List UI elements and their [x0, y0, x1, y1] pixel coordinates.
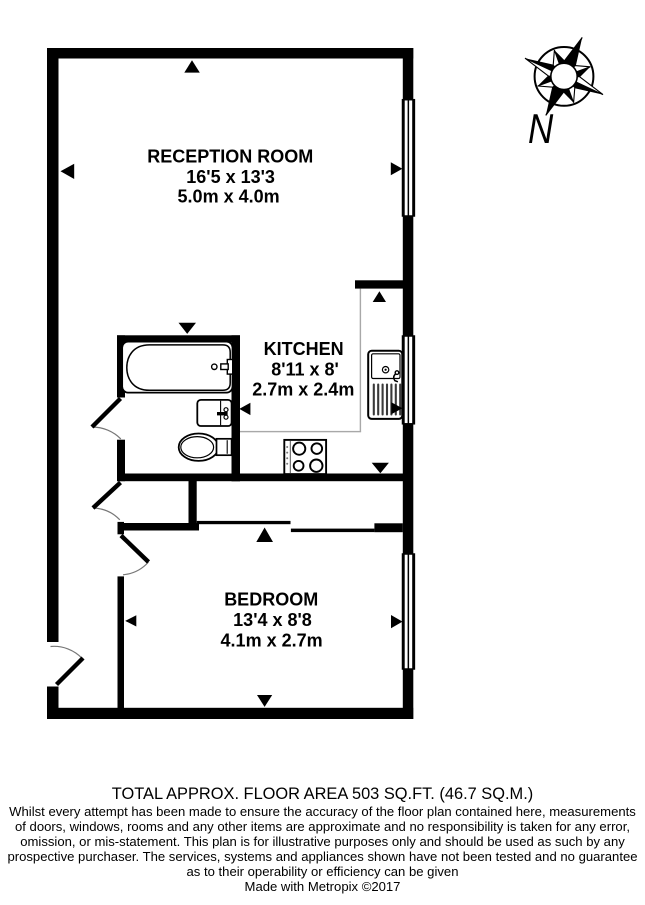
- svg-text:Whilst every attempt has been: Whilst every attempt has been made to en…: [9, 804, 636, 819]
- svg-text:KITCHEN: KITCHEN: [264, 339, 344, 359]
- svg-text:2.7m x 2.4m: 2.7m x 2.4m: [252, 380, 354, 400]
- svg-text:8'11 x 8': 8'11 x 8': [271, 360, 339, 380]
- svg-text:BEDROOM: BEDROOM: [224, 589, 318, 609]
- svg-text:omission, or mis-statement. Th: omission, or mis-statement. This plan is…: [20, 834, 625, 849]
- svg-text:5.0m x 4.0m: 5.0m x 4.0m: [178, 186, 280, 206]
- svg-text:16'5 x 13'3: 16'5 x 13'3: [186, 167, 275, 187]
- svg-text:as to their operability or eff: as to their operability or efficiency ca…: [187, 864, 459, 879]
- svg-text:TOTAL APPROX. FLOOR AREA 503 S: TOTAL APPROX. FLOOR AREA 503 SQ.FT. (46.…: [112, 785, 533, 803]
- svg-text:Made with Metropix ©2017: Made with Metropix ©2017: [245, 879, 401, 894]
- svg-text:prospective purchaser. The ser: prospective purchaser. The services, sys…: [7, 849, 637, 864]
- svg-text:N: N: [528, 106, 553, 153]
- svg-text:13'4 x 8'8: 13'4 x 8'8: [233, 610, 312, 630]
- svg-text:RECEPTION ROOM: RECEPTION ROOM: [147, 146, 313, 166]
- svg-text:4.1m x 2.7m: 4.1m x 2.7m: [221, 630, 323, 650]
- svg-text:of doors, windows, rooms and a: of doors, windows, rooms and any other i…: [15, 819, 630, 834]
